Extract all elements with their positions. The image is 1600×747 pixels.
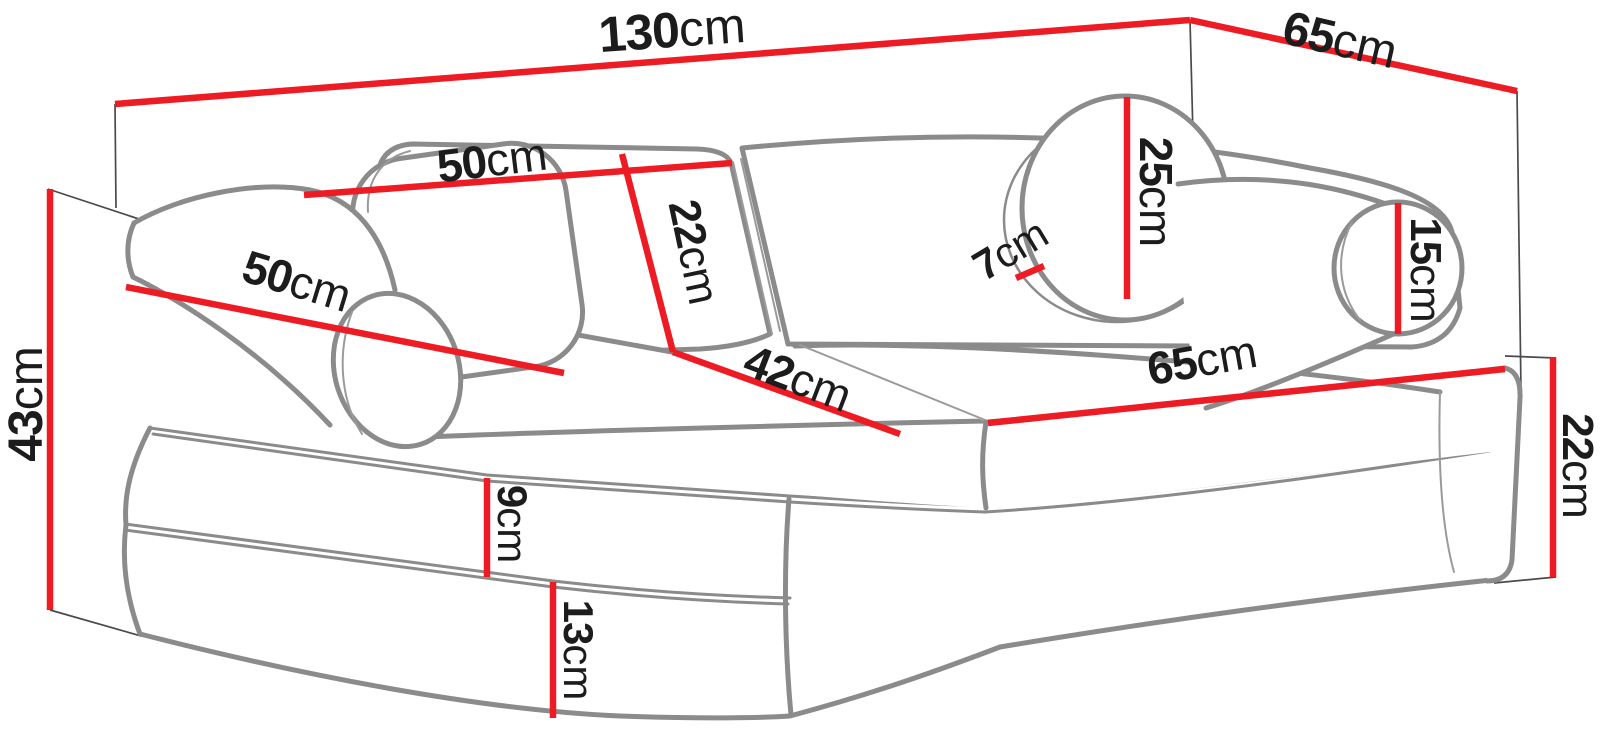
projection-line-depth-back xyxy=(1190,20,1193,135)
dimension-label-bottom-mattress-height: 13cm xyxy=(556,600,603,701)
projection-line-height-bottom xyxy=(50,610,141,636)
dimension-label-top-mattress-height: 9cm xyxy=(490,485,537,563)
dimension-label-seat-cushion-height: 22cm xyxy=(1554,413,1600,519)
dimension-label-side-bolster-diameter: 15cm xyxy=(1402,217,1451,323)
projection-line-seat-height-top xyxy=(1505,356,1556,358)
sofa-dimension-diagram: 130cm 65cm 50cm 50cm 22cm 42cm 25cm 7cm … xyxy=(0,0,1600,747)
dimension-label-total-height: 43cm xyxy=(0,346,53,461)
dimension-label-round-pillow-diameter: 25cm xyxy=(1130,137,1182,248)
projection-line-depth-right xyxy=(1517,91,1521,392)
diagram-canvas: 130cm 65cm 50cm 50cm 22cm 42cm 25cm 7cm … xyxy=(0,0,1600,747)
dimension-label-total-depth: 65cm xyxy=(1278,1,1402,79)
dimension-label-total-width: 130cm xyxy=(597,0,748,63)
projection-line-width-left xyxy=(115,104,116,208)
